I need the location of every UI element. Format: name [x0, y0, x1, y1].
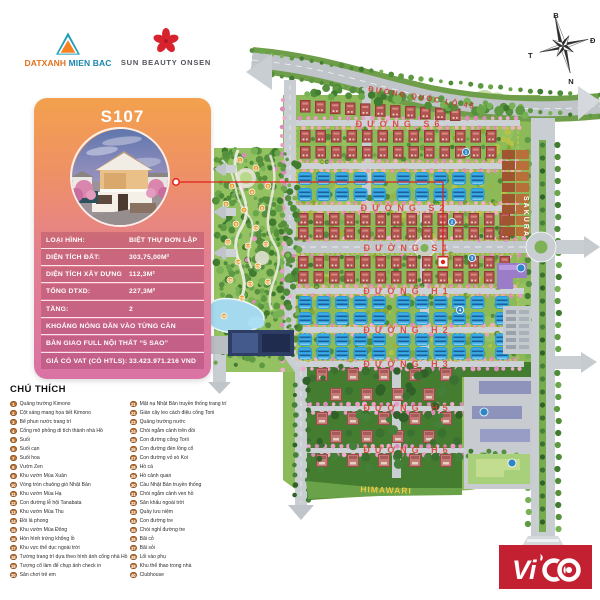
svg-text:ĐƯỜNG H5: ĐƯỜNG H5 [363, 402, 452, 413]
svg-text:18: 18 [266, 280, 271, 285]
svg-text:ĐƯỜNG H2: ĐƯỜNG H2 [363, 324, 452, 335]
svg-text:12: 12 [246, 244, 251, 249]
svg-text:13: 13 [264, 242, 269, 247]
svg-text:16: 16 [228, 278, 233, 283]
svg-text:ĐƯỜNG H3: ĐƯỜNG H3 [363, 358, 452, 369]
svg-text:19: 19 [240, 296, 245, 301]
svg-text:T: T [528, 51, 533, 60]
svg-text:14: 14 [236, 260, 241, 265]
svg-text:Vi: Vi [512, 555, 537, 585]
svg-text:15: 15 [256, 264, 261, 269]
svg-text:ĐƯỜNG S1: ĐƯỜNG S1 [364, 242, 453, 253]
svg-text:17: 17 [248, 282, 253, 287]
svg-text:B: B [553, 11, 559, 20]
svg-text:Đ: Đ [590, 36, 596, 45]
svg-text:10: 10 [254, 226, 259, 231]
svg-text:20: 20 [222, 314, 227, 319]
svg-text:ĐƯỜNG H6: ĐƯỜNG H6 [363, 444, 452, 455]
svg-text:ĐƯỜNG H1: ĐƯỜNG H1 [363, 285, 452, 296]
svg-text:N: N [568, 77, 573, 86]
svg-text:SAKURA: SAKURA [522, 196, 529, 238]
svg-text:HIMAWARI: HIMAWARI [360, 484, 412, 496]
svg-text:ĐƯỜNG S2: ĐƯỜNG S2 [361, 202, 450, 213]
svg-text:ĐƯỜNG S6: ĐƯỜNG S6 [356, 118, 445, 129]
